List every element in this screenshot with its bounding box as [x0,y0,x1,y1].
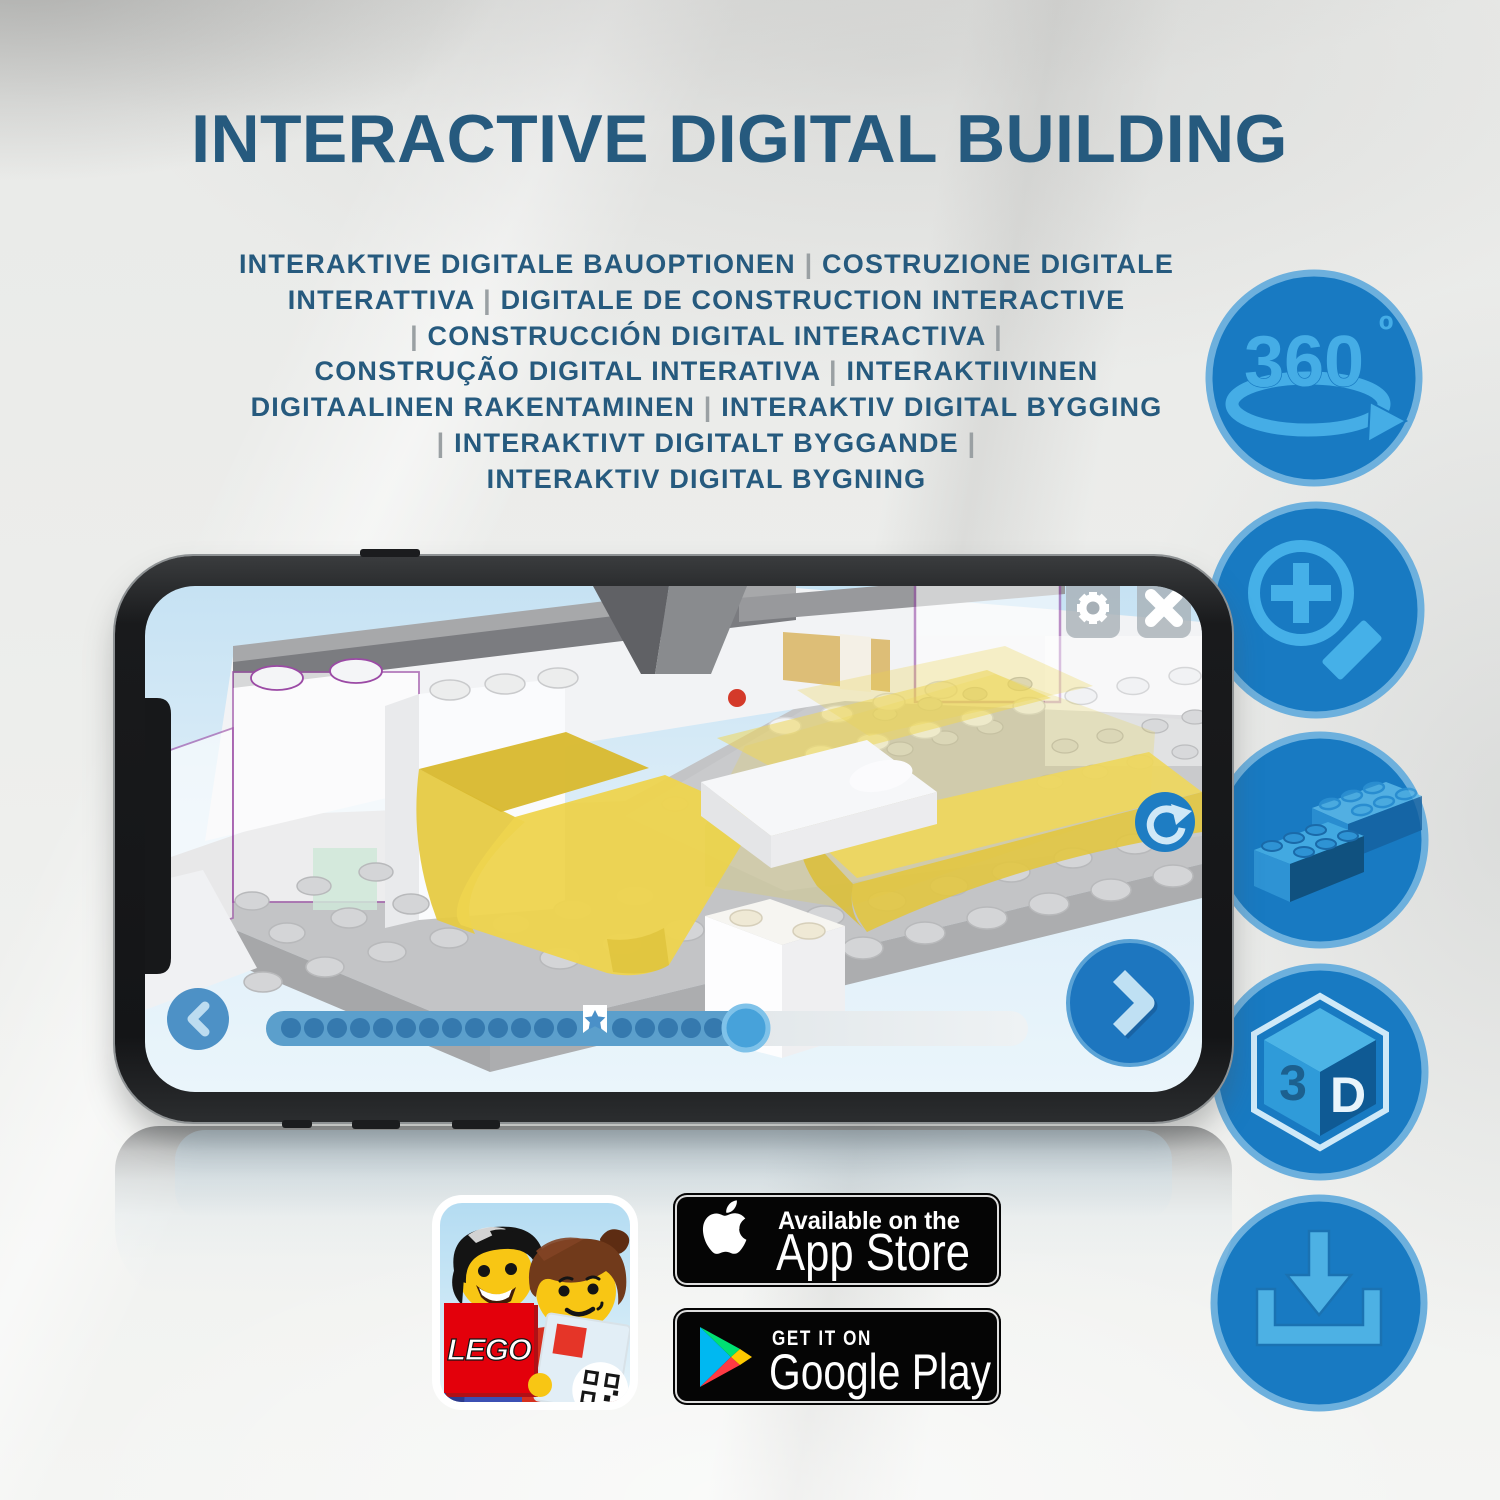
svg-text:App Store: App Store [776,1224,970,1282]
svg-text:3: 3 [1279,1055,1307,1111]
svg-text:Google Play: Google Play [769,1344,991,1400]
svg-text:LEGO: LEGO [447,1332,532,1367]
svg-text:D: D [1330,1067,1366,1123]
svg-text:º: º [1379,309,1394,353]
svg-text:360: 360 [1244,322,1364,402]
